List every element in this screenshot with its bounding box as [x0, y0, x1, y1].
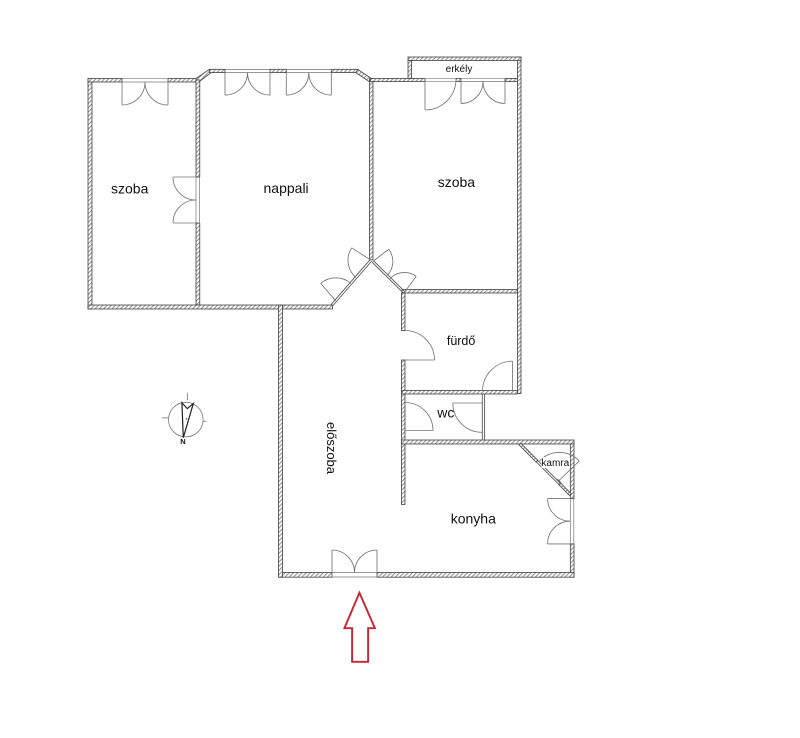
svg-text:szoba: szoba [438, 174, 476, 190]
svg-text:kamra: kamra [541, 458, 569, 469]
svg-text:N: N [180, 437, 185, 446]
svg-text:fürdő: fürdő [447, 334, 476, 348]
svg-text:konyha: konyha [451, 511, 496, 527]
svg-text:szoba: szoba [111, 180, 149, 196]
svg-text:nappali: nappali [264, 180, 309, 196]
svg-text:erkély: erkély [446, 64, 473, 75]
svg-text:wc: wc [436, 405, 454, 421]
svg-text:előszoba: előszoba [324, 422, 339, 475]
